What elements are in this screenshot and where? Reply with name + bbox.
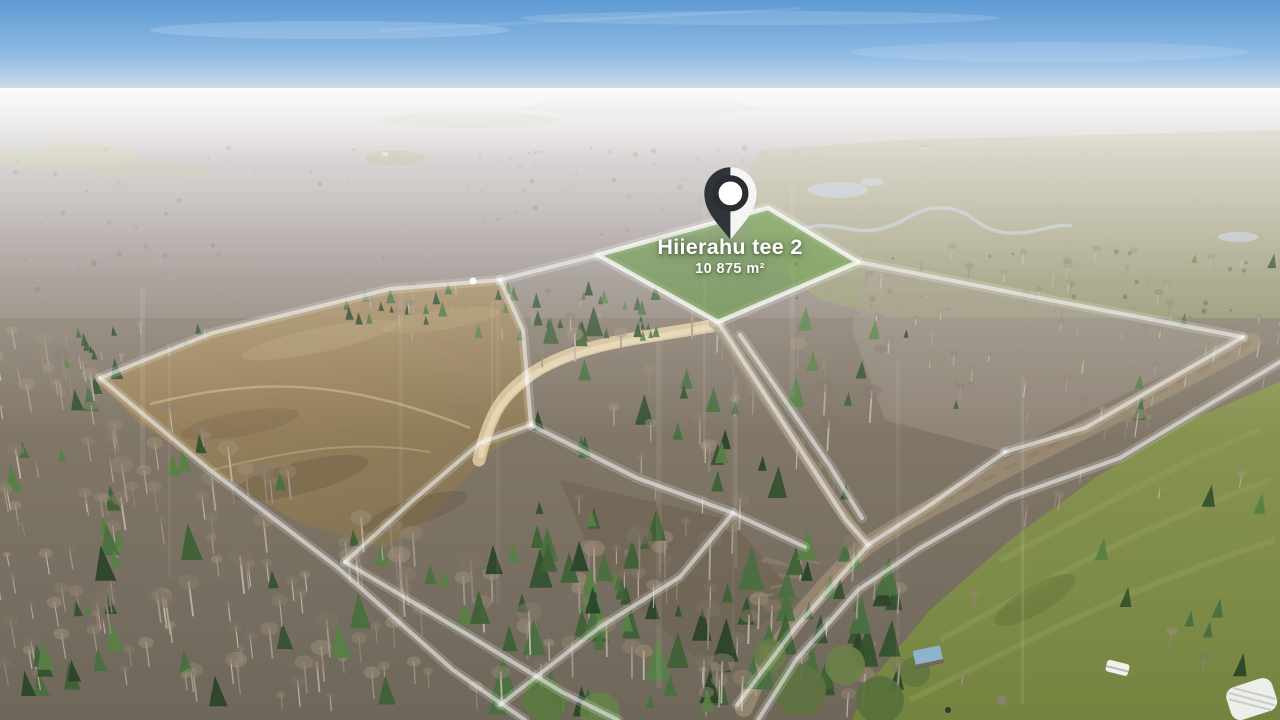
aerial-photo: Hiierahu tee 2 10 875 m² [0,0,1280,720]
landscape-scene [0,0,1280,720]
fire-pit [997,695,1007,705]
dark-spot [945,707,951,713]
